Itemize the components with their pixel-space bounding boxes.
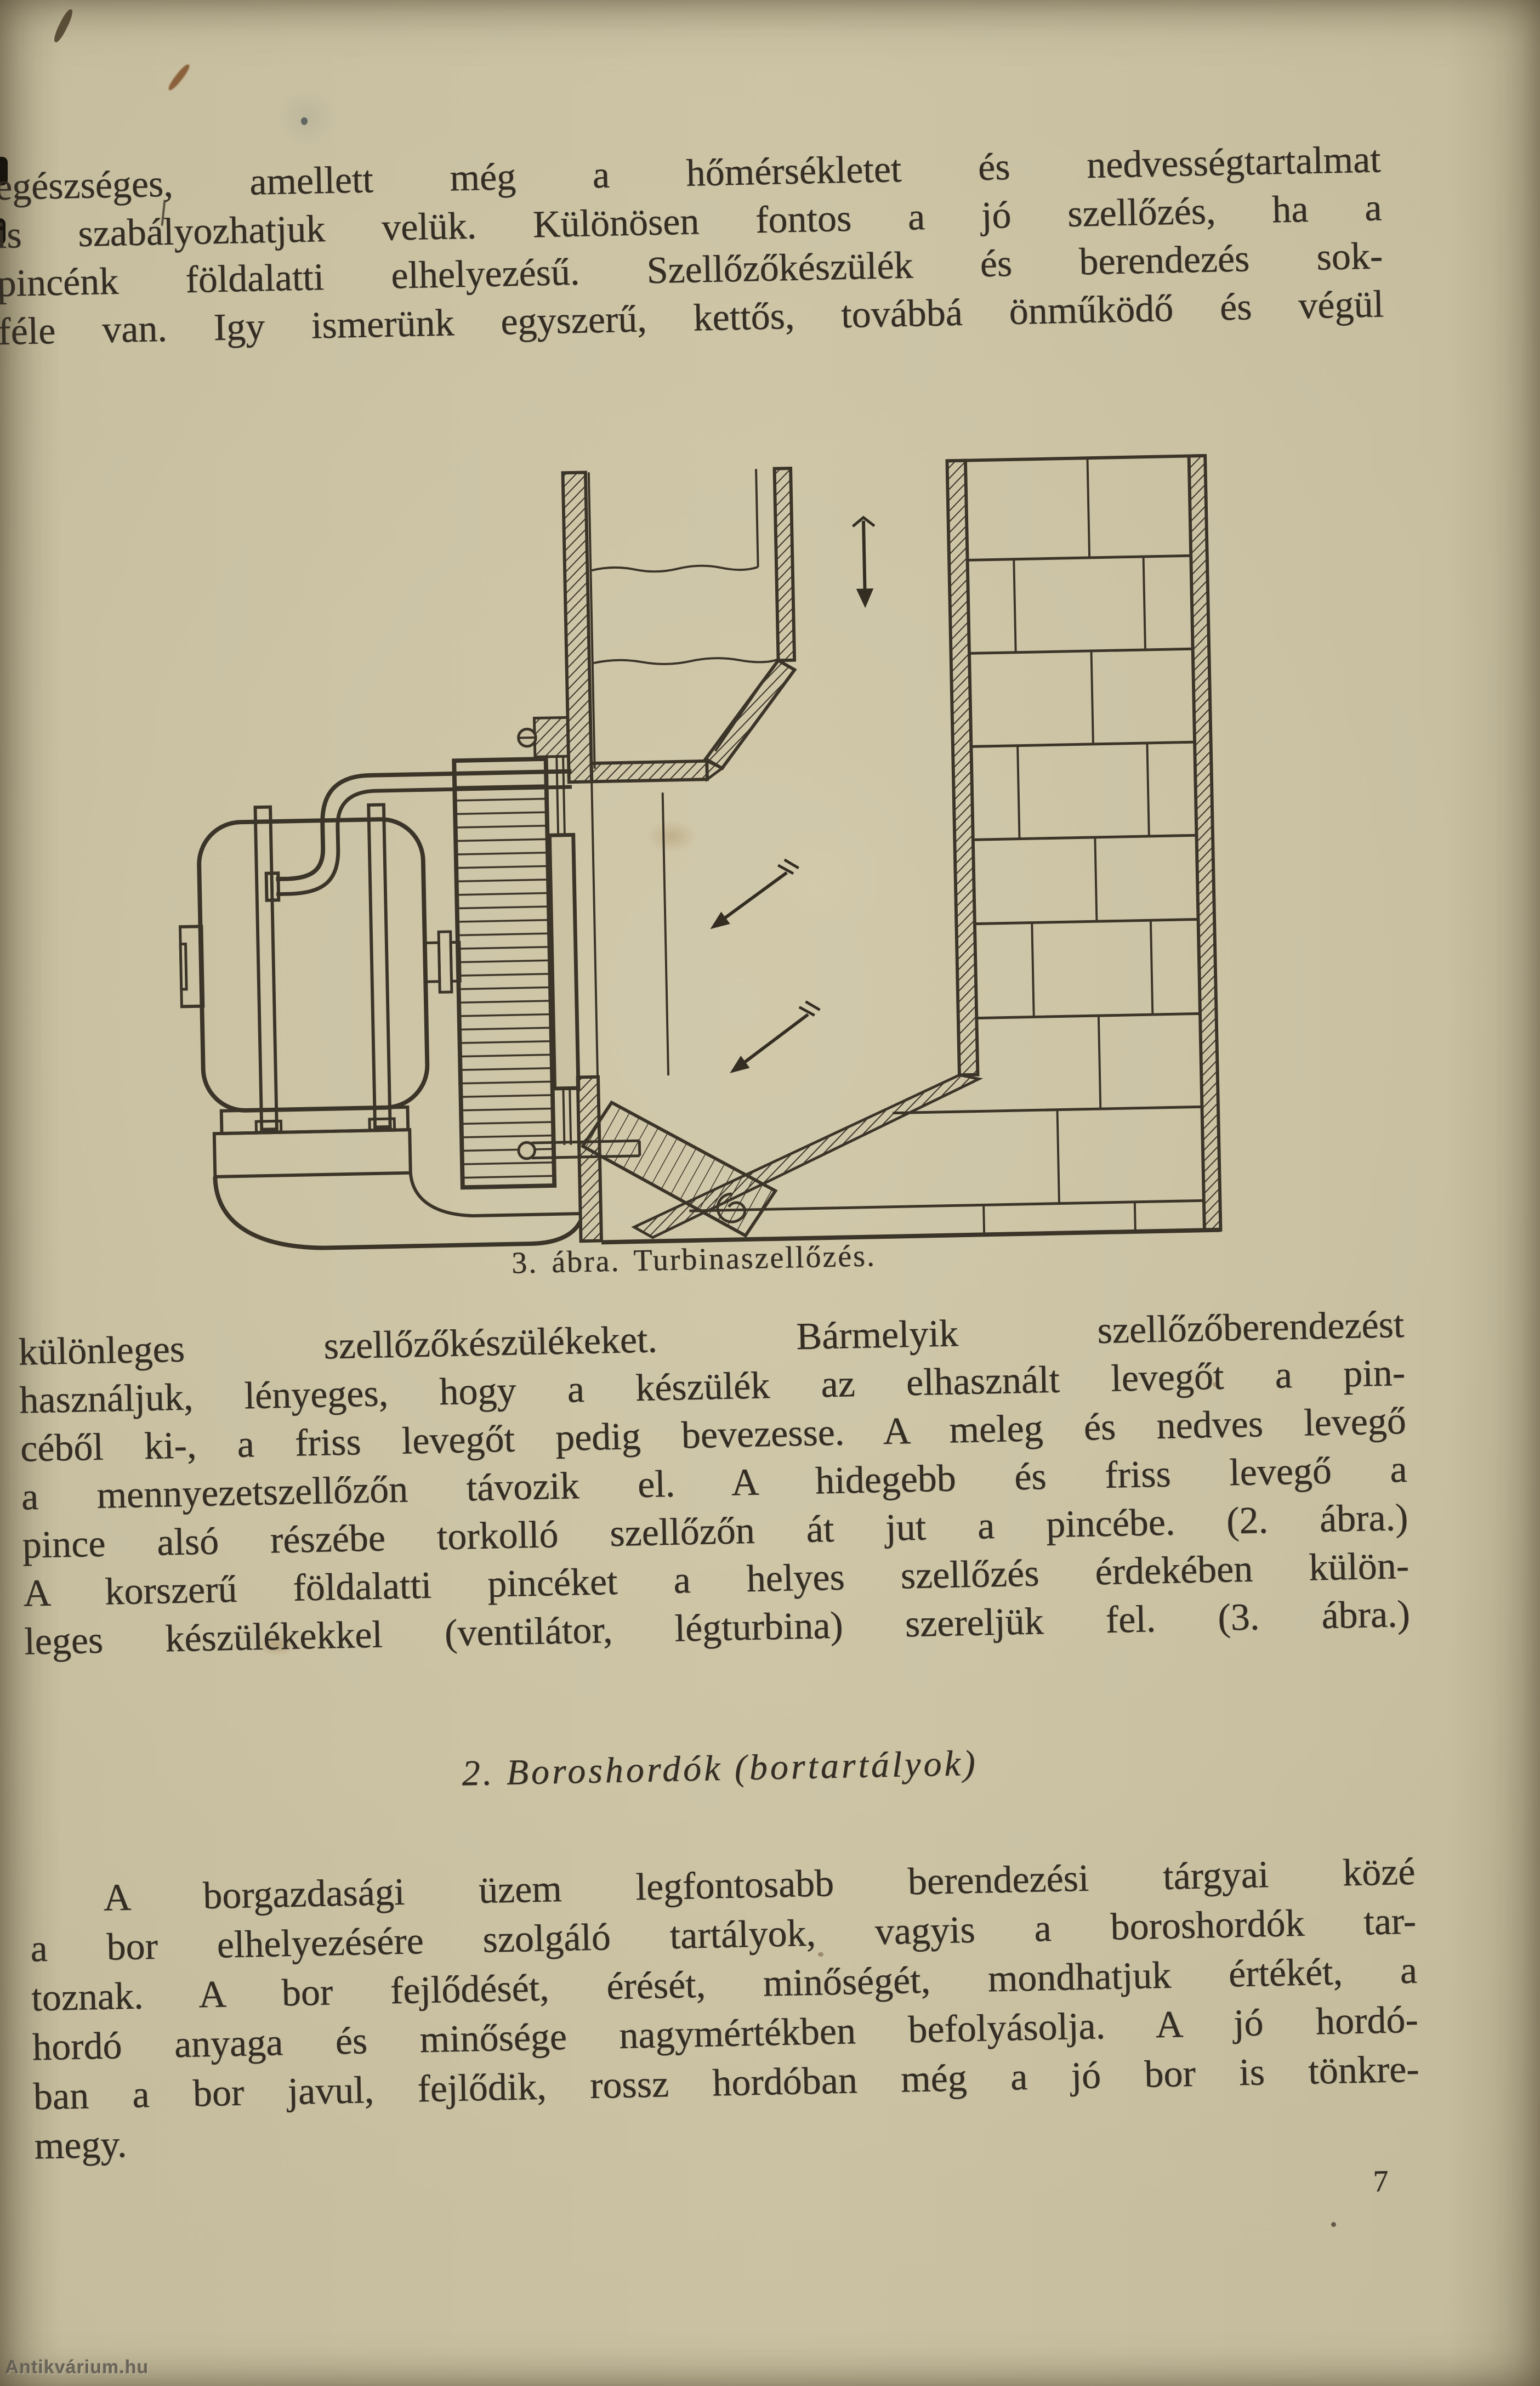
scanned-book-page: egészséges, amellett még a hőmérsékletet… xyxy=(0,0,1540,2386)
wall-line xyxy=(592,781,598,1076)
paragraph-wine-barrels: A borgazdasági üzem legfontosabb berende… xyxy=(29,1847,1420,2172)
duct-bracket-top xyxy=(518,717,569,757)
lower-wall-strip xyxy=(578,1077,601,1241)
shaft-coupling xyxy=(424,932,460,993)
turbine-fan xyxy=(454,759,554,1187)
figure-turbine-ventilation xyxy=(169,428,1254,1258)
page-content: egészséges, amellett még a hőmérsékletet… xyxy=(0,0,1540,2386)
section-heading: 2. Boroshordók (bortartályok) xyxy=(27,1734,1413,1804)
paragraph-ventilation-intro: egészséges, amellett még a hőmérsékletet… xyxy=(0,135,1384,356)
room-corner-line xyxy=(663,792,668,1075)
airflow-arrow-down-icon xyxy=(853,517,876,608)
electric-motor xyxy=(177,804,430,1177)
fan-mount-plate xyxy=(549,835,578,1089)
ventilation-duct xyxy=(563,468,797,782)
figure-illustration xyxy=(169,428,1254,1258)
paragraph-ventilation-devices: különleges szellőzőkészülékeket. Bármely… xyxy=(18,1301,1411,1667)
airflow-arrow-left-icon xyxy=(729,1001,821,1073)
watermark: Antikvárium.hu xyxy=(5,2357,149,2378)
brick-wall xyxy=(586,456,1221,1242)
airflow-arrow-left-icon xyxy=(709,859,800,929)
page-number: 7 xyxy=(1373,2164,1389,2200)
